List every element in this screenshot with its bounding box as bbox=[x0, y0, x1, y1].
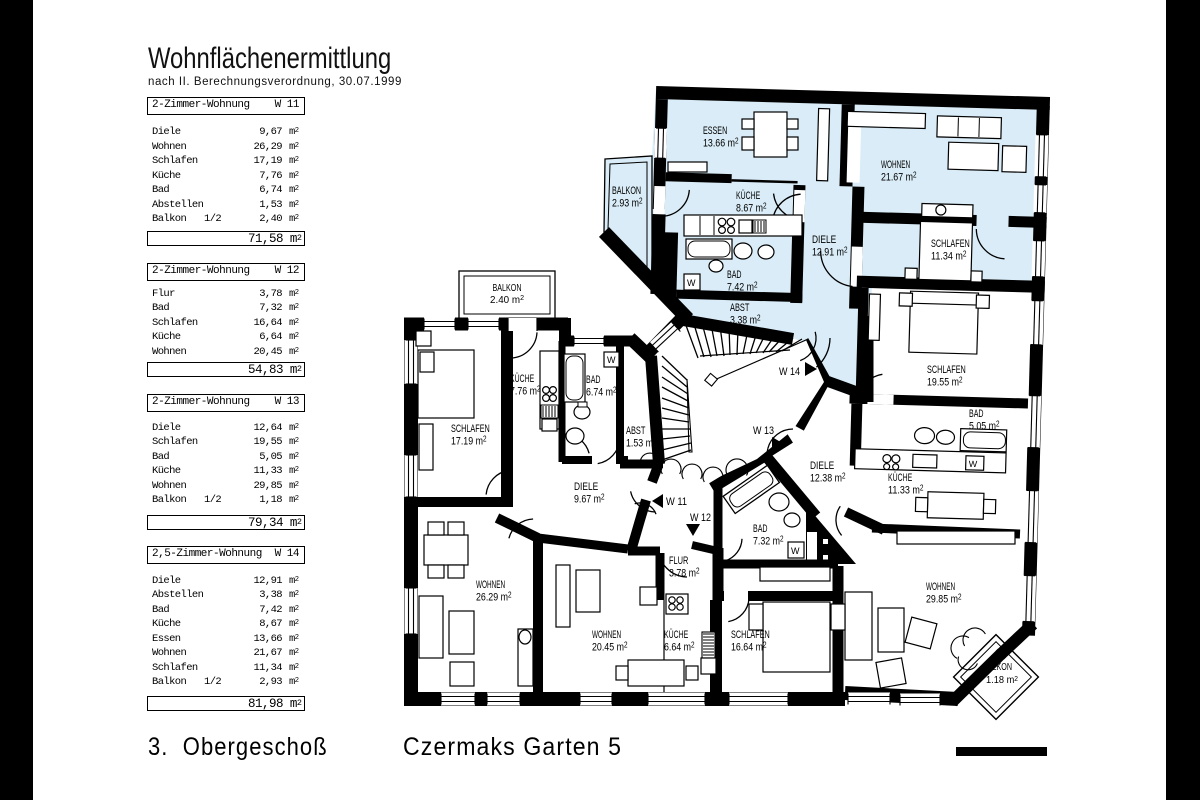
svg-text:W: W bbox=[969, 459, 978, 469]
svg-text:KÜCHE: KÜCHE bbox=[510, 373, 534, 385]
svg-text:WOHNEN: WOHNEN bbox=[926, 581, 955, 593]
svg-text:DIELE: DIELE bbox=[812, 234, 836, 246]
svg-text:W 13: W 13 bbox=[753, 425, 774, 437]
svg-text:BAD: BAD bbox=[727, 269, 742, 281]
svg-text:BAD: BAD bbox=[753, 523, 768, 535]
svg-text:6.74 m2: 6.74 m2 bbox=[586, 386, 617, 399]
svg-text:11.34 m2: 11.34 m2 bbox=[931, 250, 967, 263]
svg-text:KÜCHE: KÜCHE bbox=[736, 190, 760, 202]
svg-text:6.64 m2: 6.64 m2 bbox=[664, 641, 695, 654]
svg-text:BAD: BAD bbox=[586, 374, 601, 386]
svg-text:29.85 m2: 29.85 m2 bbox=[926, 593, 962, 606]
svg-text:KÜCHE: KÜCHE bbox=[664, 629, 688, 641]
svg-text:WOHNEN: WOHNEN bbox=[881, 159, 910, 171]
svg-text:8.67 m2: 8.67 m2 bbox=[736, 202, 767, 215]
svg-text:16.64 m2: 16.64 m2 bbox=[731, 641, 767, 654]
svg-text:11.33 m2: 11.33 m2 bbox=[888, 484, 924, 497]
svg-text:SCHLAFEN: SCHLAFEN bbox=[451, 423, 490, 435]
svg-text:20.45 m2: 20.45 m2 bbox=[592, 641, 628, 654]
svg-text:3.78 m2: 3.78 m2 bbox=[669, 567, 700, 580]
svg-text:BALKON: BALKON bbox=[612, 185, 641, 197]
svg-text:ABST: ABST bbox=[730, 302, 750, 314]
svg-text:12.38 m2: 12.38 m2 bbox=[810, 472, 846, 485]
svg-text:BAD: BAD bbox=[969, 408, 984, 420]
svg-text:7.32 m2: 7.32 m2 bbox=[753, 535, 784, 548]
svg-text:W: W bbox=[791, 546, 800, 556]
svg-text:W 14: W 14 bbox=[779, 366, 800, 378]
svg-text:W 12: W 12 bbox=[690, 512, 711, 524]
svg-text:3.38 m2: 3.38 m2 bbox=[730, 314, 761, 327]
svg-text:17.19 m2: 17.19 m2 bbox=[451, 435, 487, 448]
svg-text:W: W bbox=[607, 355, 616, 365]
svg-text:ABST: ABST bbox=[626, 425, 646, 437]
svg-text:W 11: W 11 bbox=[666, 496, 687, 508]
svg-text:1.53 m2: 1.53 m2 bbox=[626, 437, 657, 450]
svg-text:21.67 m2: 21.67 m2 bbox=[881, 171, 917, 184]
svg-text:5.05 m2: 5.05 m2 bbox=[969, 420, 1000, 433]
svg-text:SCHLAFEN: SCHLAFEN bbox=[731, 629, 770, 641]
svg-text:2.40 m2: 2.40 m2 bbox=[490, 293, 524, 306]
svg-text:DIELE: DIELE bbox=[810, 460, 834, 472]
svg-text:1.18 m2: 1.18 m2 bbox=[986, 674, 1018, 686]
svg-text:9.67 m2: 9.67 m2 bbox=[574, 493, 605, 506]
svg-text:SCHLAFEN: SCHLAFEN bbox=[931, 238, 970, 250]
svg-text:WOHNEN: WOHNEN bbox=[476, 579, 505, 591]
svg-text:KÜCHE: KÜCHE bbox=[888, 472, 912, 484]
svg-text:7.42 m2: 7.42 m2 bbox=[727, 281, 758, 294]
svg-text:DIELE: DIELE bbox=[574, 481, 598, 493]
svg-text:BALKON: BALKON bbox=[493, 282, 522, 294]
svg-text:12.91 m2: 12.91 m2 bbox=[812, 246, 848, 259]
svg-text:7.76 m2: 7.76 m2 bbox=[510, 385, 541, 398]
svg-text:26.29 m2: 26.29 m2 bbox=[476, 591, 512, 604]
svg-text:2.93 m2: 2.93 m2 bbox=[612, 197, 643, 210]
svg-text:WOHNEN: WOHNEN bbox=[592, 629, 621, 641]
svg-text:SCHLAFEN: SCHLAFEN bbox=[927, 364, 966, 376]
svg-text:FLUR: FLUR bbox=[669, 555, 688, 567]
svg-text:13.66 m2: 13.66 m2 bbox=[703, 137, 739, 150]
svg-text:19.55 m2: 19.55 m2 bbox=[927, 376, 963, 389]
svg-text:ESSEN: ESSEN bbox=[703, 125, 727, 137]
svg-text:W: W bbox=[687, 278, 696, 288]
svg-text:BALKON: BALKON bbox=[983, 662, 1012, 673]
